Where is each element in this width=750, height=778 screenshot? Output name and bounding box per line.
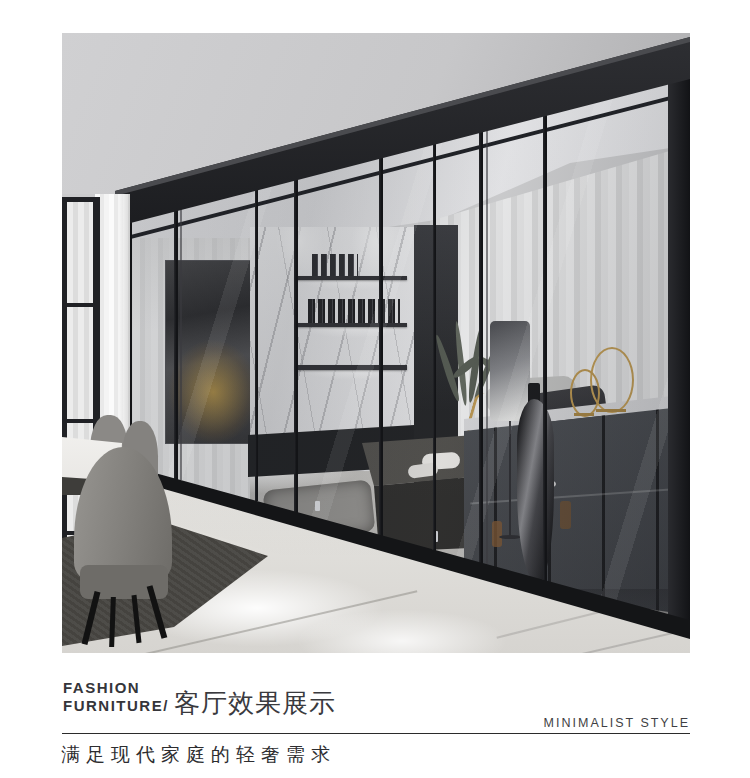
partition-mullion	[479, 128, 483, 564]
brand-line-2: FURNITURE/	[63, 697, 169, 715]
partition-mullion	[294, 178, 298, 513]
section-title: 客厅效果展示	[174, 686, 336, 721]
partition-mullion	[255, 188, 258, 501]
window-muntin	[66, 303, 94, 307]
divider-line	[62, 733, 690, 734]
door-handle	[315, 501, 320, 511]
partition-end-post	[668, 63, 690, 621]
poster: FASHION FURNITURE/ 客厅效果展示 MINIMALIST STY…	[0, 0, 750, 778]
living-room-photo	[62, 33, 690, 653]
partition-mullion	[174, 209, 178, 480]
partition-mullion	[543, 112, 547, 581]
partition-mullion	[180, 209, 182, 480]
subtitle: 满足现代家庭的轻奢需求	[61, 742, 336, 768]
partition-mullion	[486, 128, 488, 564]
brand-line-1: FASHION	[63, 679, 169, 697]
partition-mullion	[433, 141, 436, 551]
style-label: MINIMALIST STYLE	[544, 716, 690, 730]
partition-mullion	[379, 155, 383, 536]
window-muntin	[66, 419, 94, 423]
brand-logo: FASHION FURNITURE/	[63, 679, 169, 715]
